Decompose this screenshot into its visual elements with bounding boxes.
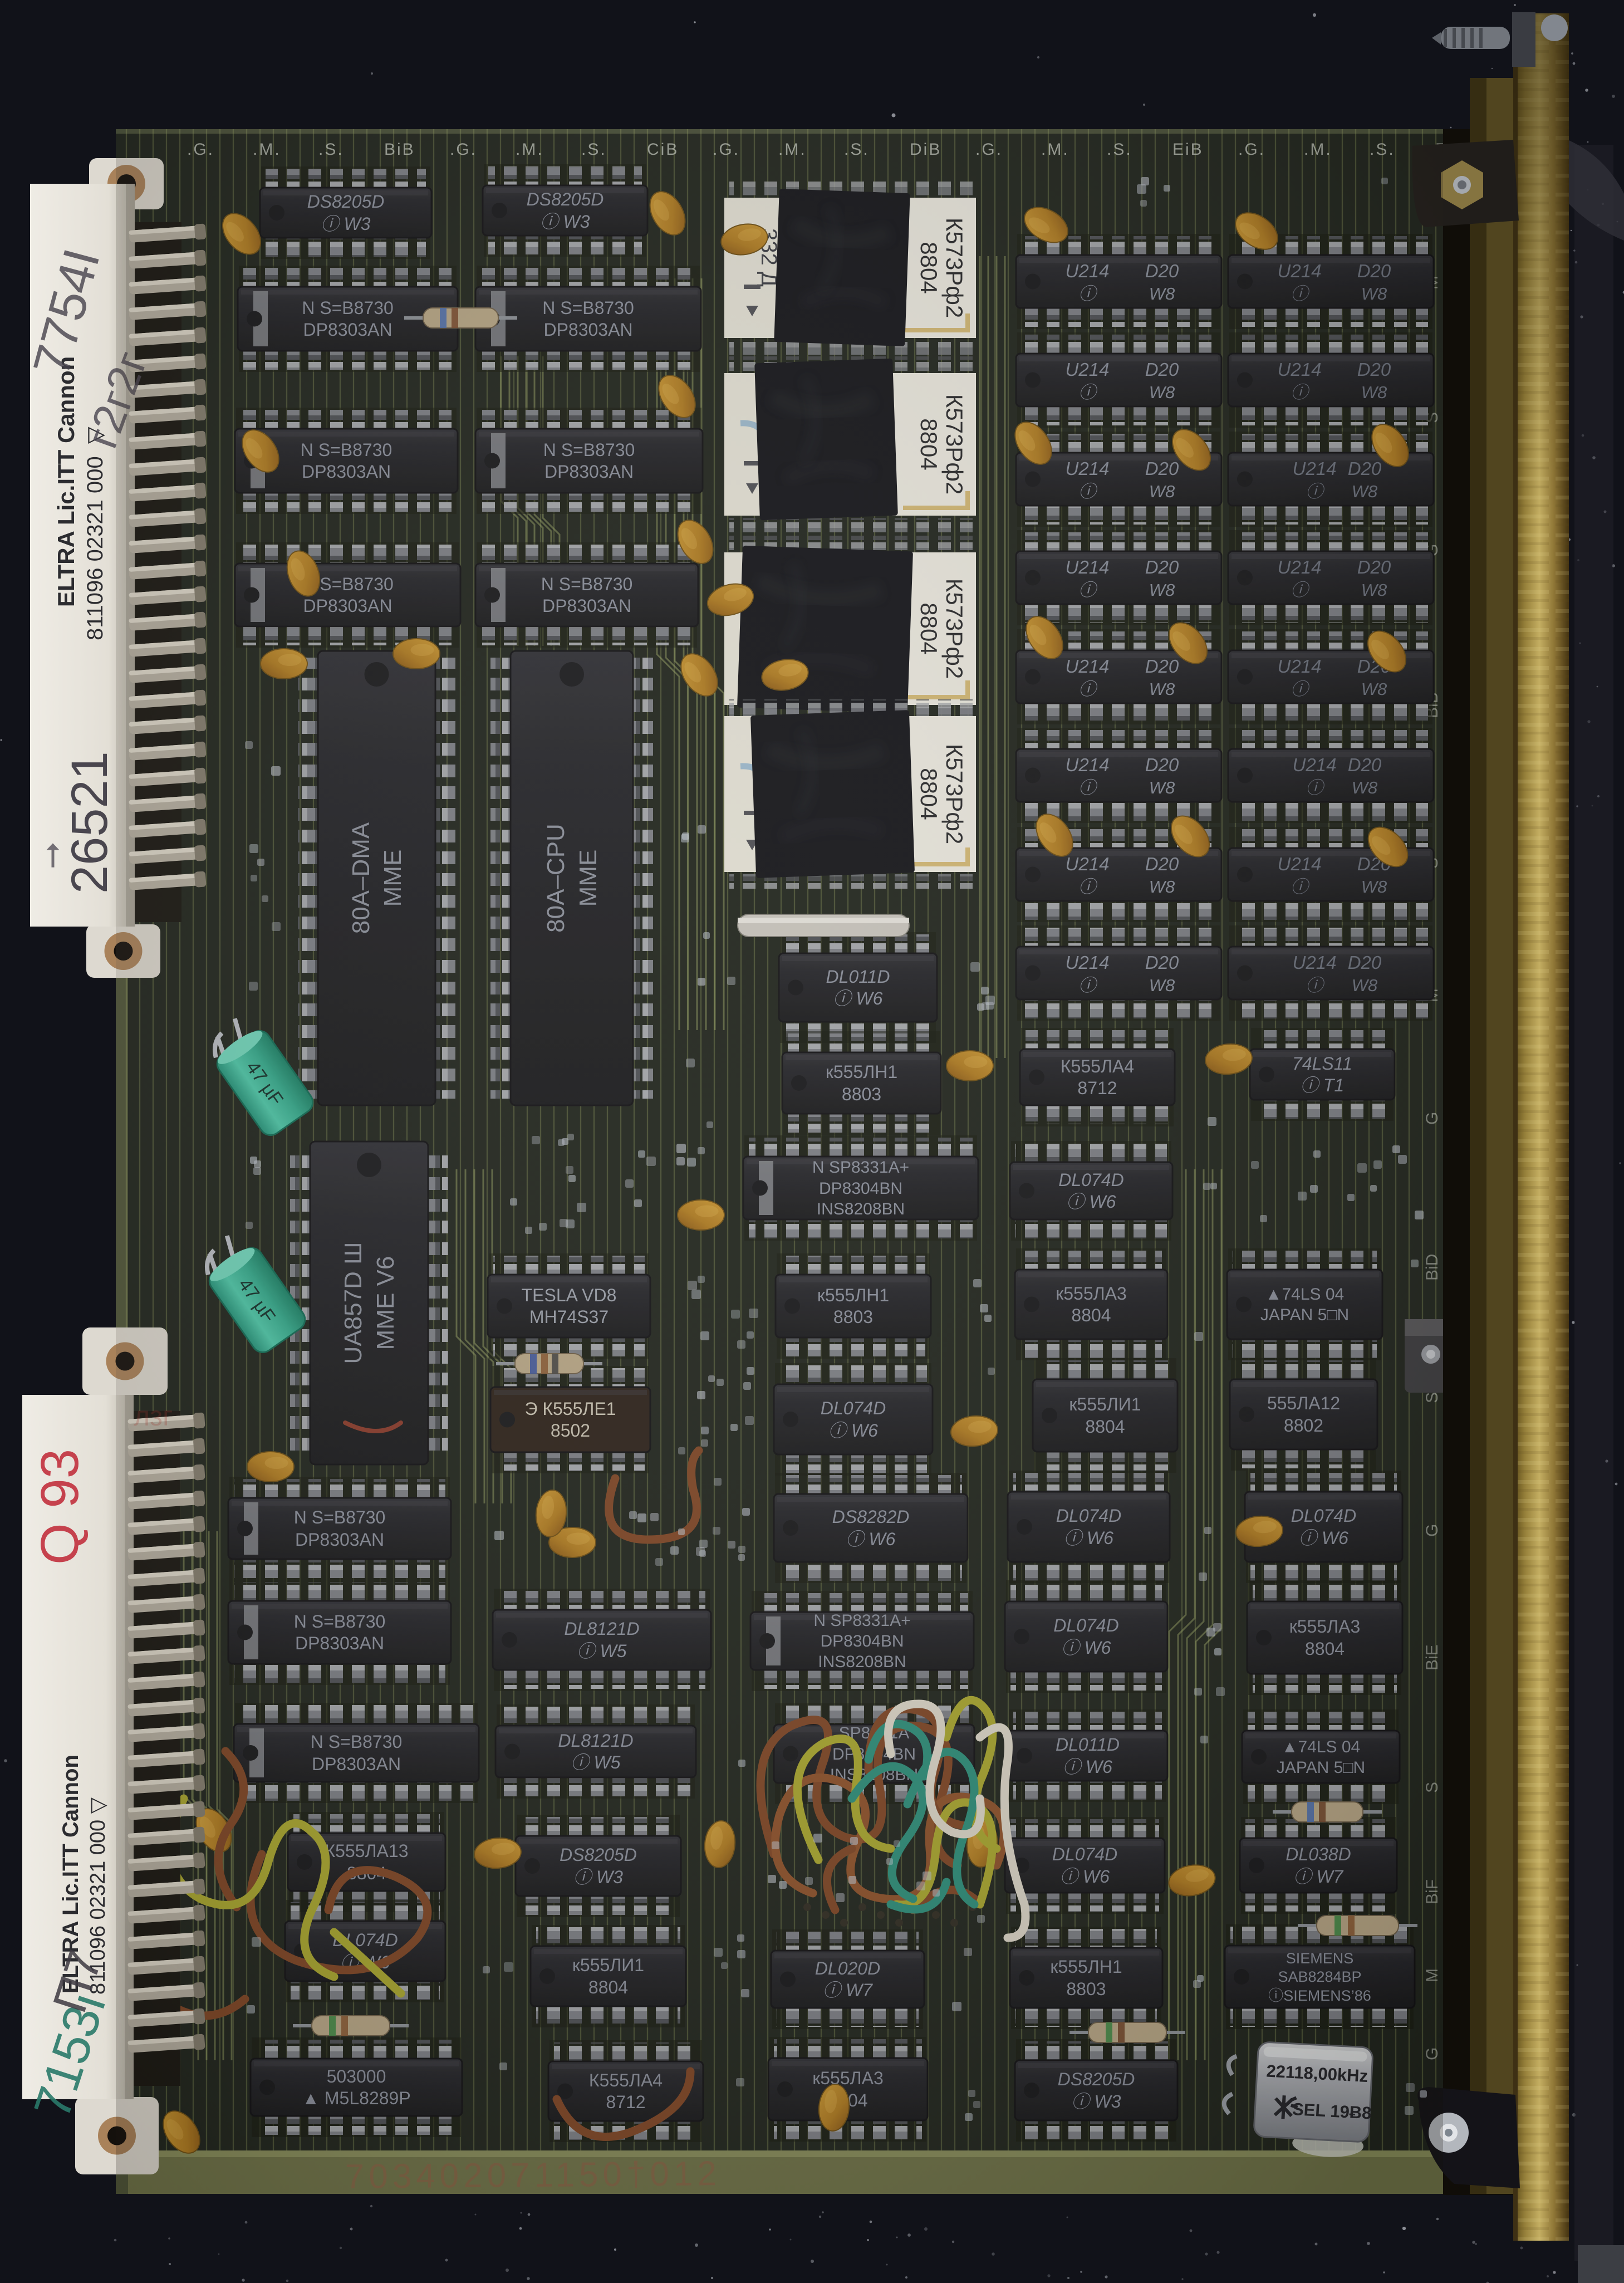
- svg-text:811096 02321 000 ▽: 811096 02321 000 ▽: [83, 427, 107, 640]
- svg-text:703402071150†012: 703402071150†012: [345, 2154, 722, 2196]
- svg-text:Q 93: Q 93: [30, 1449, 90, 1565]
- svg-text:26521: 26521: [61, 751, 118, 894]
- svg-text:ELTRA Lic.ITT Cannon: ELTRA Lic.ITT Cannon: [53, 356, 79, 607]
- svg-text:лзг: лзг: [134, 1400, 173, 1432]
- svg-text:⭢: ⭢: [31, 842, 68, 869]
